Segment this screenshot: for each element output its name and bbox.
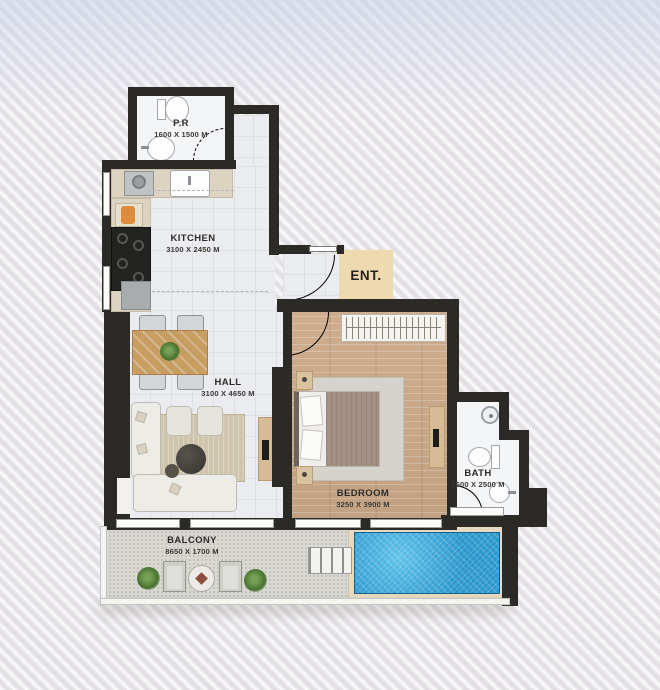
side-table (165, 464, 179, 478)
room-name: HALL (153, 377, 303, 389)
sofa (133, 474, 237, 512)
wall-segment (337, 245, 344, 254)
window (295, 519, 361, 528)
coffee-machine (121, 206, 135, 224)
pillow (300, 429, 324, 461)
wall-segment (102, 160, 236, 169)
room-dims: 1600 X 1500 M (134, 130, 228, 139)
room-dims: 1500 X 2500 M (428, 480, 528, 489)
washbasin-tap (508, 491, 516, 494)
room-label-kitchen: KITCHEN 3100 X 2450 M (118, 233, 268, 254)
window (103, 172, 110, 216)
toilet (468, 447, 491, 467)
plant (137, 567, 160, 590)
room-name: P.R (134, 118, 228, 130)
pool-steps (308, 547, 352, 574)
wall-segment (277, 299, 459, 312)
entrance-label: ENT. (339, 268, 393, 285)
room-dims: 3100 X 4650 M (153, 389, 303, 398)
balcony-wall (100, 598, 510, 605)
wall-niche (117, 478, 131, 514)
shower-head-dot (489, 414, 493, 418)
tv (262, 440, 269, 460)
washbasin (147, 136, 175, 161)
wall-segment (502, 518, 518, 606)
washing-machine-drum (132, 175, 146, 189)
window (370, 519, 442, 528)
room-name: BEDROOM (288, 488, 438, 500)
room-label-balcony: BALCONY 8650 X 1700 M (119, 535, 265, 556)
wall-segment (519, 488, 547, 517)
balcony-chair-seat (167, 566, 182, 589)
entrance-door-leaf (309, 246, 337, 252)
pillow (300, 395, 324, 427)
fridge (121, 281, 151, 310)
room-dims: 3250 X 3900 M (288, 500, 438, 509)
window (450, 507, 504, 516)
window (190, 519, 274, 528)
cabinet-dashed-line (148, 190, 234, 191)
window (103, 266, 110, 310)
armchair (197, 406, 223, 436)
blanket (326, 392, 379, 466)
armchair (166, 406, 192, 436)
wall-segment (447, 299, 459, 400)
stove-burner (117, 258, 128, 269)
nightstand-lamp (302, 472, 307, 477)
tv (433, 429, 439, 447)
wall-segment (269, 245, 311, 254)
floor-plan-page: { "plan": { "entrance_label": "ENT.", "r… (0, 0, 660, 690)
coffee-table (176, 444, 206, 474)
plant (244, 569, 267, 592)
wardrobe-hangers (346, 317, 441, 339)
wall-segment (128, 87, 234, 96)
kitchen-sink-tap (188, 176, 191, 185)
room-label-pr: P.R 1600 X 1500 M (134, 118, 228, 139)
washbasin-tap (141, 146, 149, 149)
balcony-chair-seat (223, 566, 238, 589)
toilet-tank (491, 445, 500, 469)
wall-segment (269, 105, 279, 255)
room-label-hall: HALL 3100 X 4650 M (153, 377, 303, 398)
room-label-bedroom: BEDROOM 3250 X 3900 M (288, 488, 438, 509)
room-dims: 8650 X 1700 M (119, 547, 265, 556)
plant (160, 342, 180, 361)
room-label-bath: BATH 1500 X 2500 M (428, 468, 528, 489)
room-name: BALCONY (119, 535, 265, 547)
window (116, 519, 180, 528)
balcony-wall (100, 526, 107, 602)
pool (354, 532, 500, 594)
room-dims: 3100 X 2450 M (118, 245, 268, 254)
kitchen-floor (232, 115, 270, 169)
room-name: KITCHEN (118, 233, 268, 245)
cabinet-dashed-line (152, 291, 268, 292)
room-name: BATH (428, 468, 528, 480)
entrance-text: ENT. (350, 268, 381, 283)
